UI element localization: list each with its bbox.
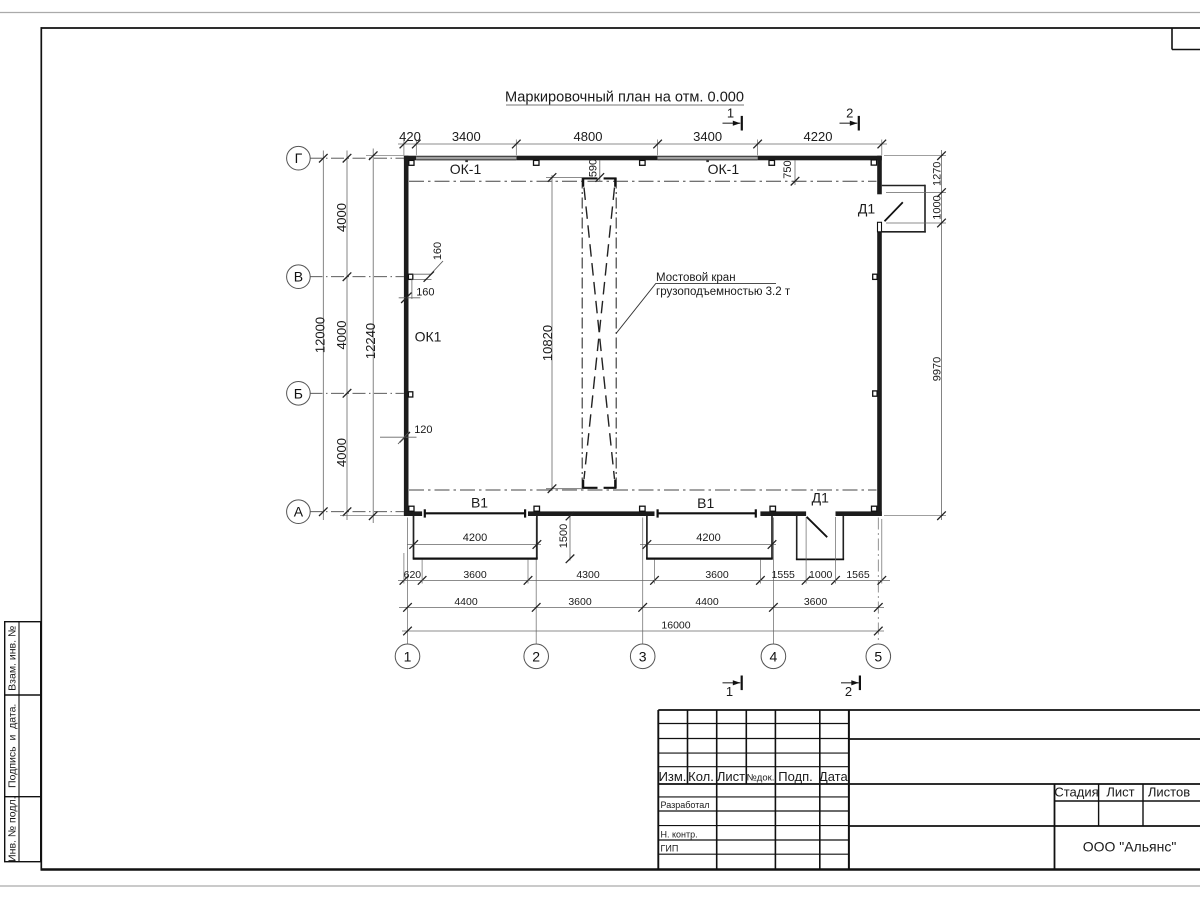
svg-text:3400: 3400 <box>693 129 722 144</box>
svg-text:10820: 10820 <box>540 325 555 361</box>
svg-text:3: 3 <box>639 648 647 664</box>
svg-text:Взам. инв. №: Взам. инв. № <box>7 626 19 691</box>
svg-text:ОК-1: ОК-1 <box>450 161 482 177</box>
svg-text:3400: 3400 <box>452 129 481 144</box>
svg-text:120: 120 <box>414 424 432 436</box>
svg-text:Мостовой кран: Мостовой кран <box>656 272 736 284</box>
svg-text:4800: 4800 <box>574 129 603 144</box>
svg-text:А: А <box>294 504 304 520</box>
svg-text:В1: В1 <box>697 495 714 511</box>
svg-text:ОК-1: ОК-1 <box>708 161 740 177</box>
svg-text:Подп.: Подп. <box>778 769 813 784</box>
svg-text:Д1: Д1 <box>812 490 829 506</box>
svg-text:16000: 16000 <box>661 620 690 632</box>
svg-text:В: В <box>294 269 303 285</box>
svg-text:3600: 3600 <box>804 596 828 608</box>
svg-text:ОК1: ОК1 <box>415 329 442 345</box>
svg-text:4200: 4200 <box>696 532 720 544</box>
svg-text:4220: 4220 <box>804 129 833 144</box>
svg-text:590: 590 <box>587 159 599 177</box>
svg-text:В1: В1 <box>471 495 488 511</box>
svg-text:3600: 3600 <box>705 569 729 581</box>
svg-text:4000: 4000 <box>334 438 349 467</box>
svg-text:Д1: Д1 <box>858 201 875 217</box>
svg-text:160: 160 <box>416 287 434 299</box>
svg-text:4: 4 <box>770 648 778 664</box>
svg-text:Листов: Листов <box>1148 785 1190 800</box>
svg-text:1000: 1000 <box>809 569 833 581</box>
svg-text:2: 2 <box>846 106 853 121</box>
svg-text:3600: 3600 <box>568 596 592 608</box>
svg-text:2: 2 <box>845 684 852 699</box>
svg-text:5: 5 <box>874 648 882 664</box>
svg-text:620: 620 <box>404 569 422 581</box>
svg-text:1270: 1270 <box>931 162 943 186</box>
svg-text:420: 420 <box>399 129 421 144</box>
svg-text:4300: 4300 <box>576 569 600 581</box>
svg-text:1500: 1500 <box>558 524 570 548</box>
svg-text:1555: 1555 <box>772 569 796 581</box>
svg-text:Подпись и дата.: Подпись и дата. <box>7 704 19 788</box>
svg-text:3600: 3600 <box>463 569 487 581</box>
svg-text:4200: 4200 <box>463 532 487 544</box>
svg-text:1: 1 <box>727 106 734 121</box>
svg-text:Г: Г <box>295 150 303 166</box>
svg-text:Стадия: Стадия <box>1054 785 1098 800</box>
svg-text:Дата: Дата <box>819 769 849 784</box>
svg-text:Лист: Лист <box>717 769 745 784</box>
svg-text:1: 1 <box>404 648 412 664</box>
svg-text:Кол.: Кол. <box>688 769 714 784</box>
svg-text:2: 2 <box>532 648 540 664</box>
svg-text:грузоподъемностью 3.2 т: грузоподъемностью 3.2 т <box>656 286 791 298</box>
svg-text:№док.: №док. <box>747 773 775 784</box>
svg-text:1565: 1565 <box>846 569 870 581</box>
svg-text:12000: 12000 <box>312 317 327 353</box>
svg-text:4400: 4400 <box>695 596 719 608</box>
svg-text:Б: Б <box>294 385 303 401</box>
svg-text:4000: 4000 <box>334 203 349 232</box>
svg-text:Инв. № подл.: Инв. № подл. <box>7 796 19 861</box>
svg-text:Н. контр.: Н. контр. <box>661 829 698 839</box>
svg-text:4400: 4400 <box>454 596 478 608</box>
svg-text:1: 1 <box>726 684 733 699</box>
svg-text:12240: 12240 <box>363 323 378 359</box>
svg-text:ООО "Альянс": ООО "Альянс" <box>1083 839 1177 855</box>
svg-text:160: 160 <box>432 242 444 260</box>
svg-text:750: 750 <box>782 160 794 178</box>
svg-text:4000: 4000 <box>334 321 349 350</box>
svg-text:Разработал: Разработал <box>661 800 710 810</box>
svg-text:Маркировочный план на отм. 0.0: Маркировочный план на отм. 0.000 <box>505 90 744 106</box>
svg-text:Изм.: Изм. <box>659 769 687 784</box>
svg-text:ГИП: ГИП <box>661 844 679 854</box>
svg-text:1000: 1000 <box>931 195 943 219</box>
svg-text:Лист: Лист <box>1106 785 1134 800</box>
svg-text:9970: 9970 <box>931 357 943 381</box>
